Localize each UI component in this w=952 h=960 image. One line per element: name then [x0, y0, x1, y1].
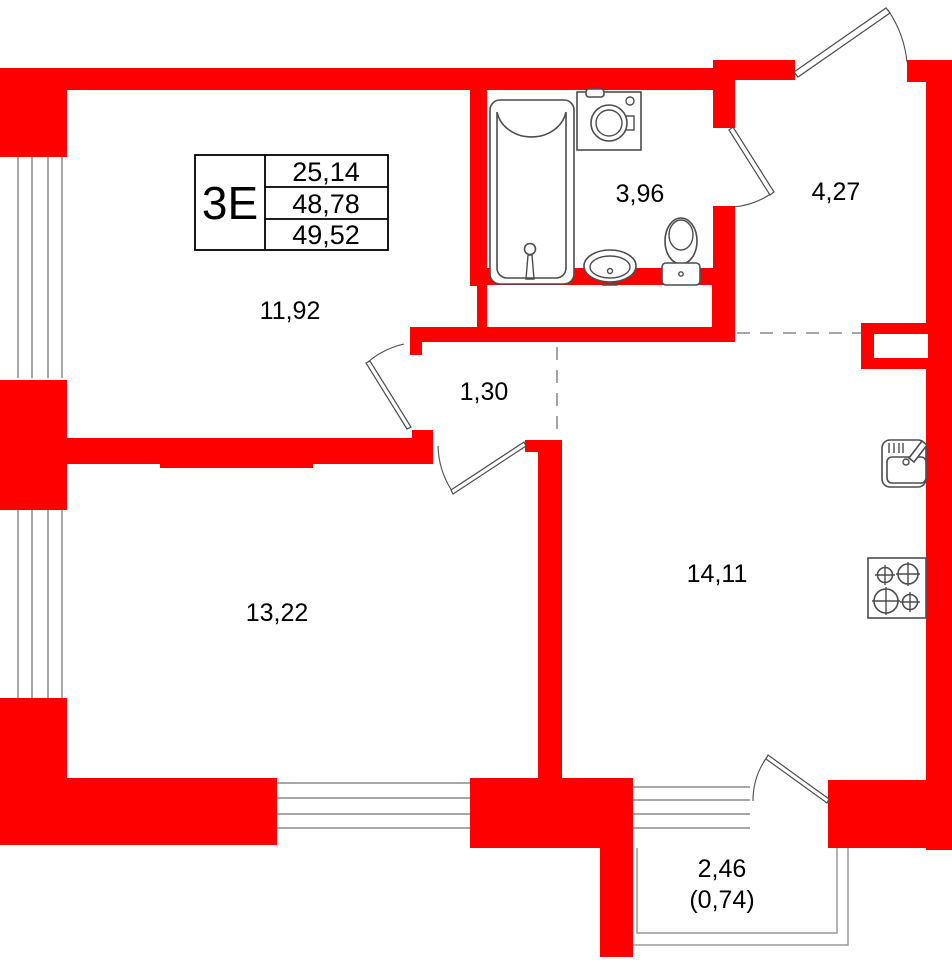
dashed-boundaries — [557, 333, 861, 433]
unit-area-value-2: 48,78 — [292, 189, 360, 219]
wall-bath-hall-divider-lower — [713, 206, 735, 342]
balcony-door-leaf — [766, 755, 829, 803]
wall-bathroom-left — [470, 86, 487, 286]
room-area-label-kitchen-living: 14,11 — [687, 560, 748, 588]
unit-area-value-1: 25,14 — [292, 157, 360, 187]
walls — [0, 60, 952, 957]
room-lower-door-leaf — [451, 442, 526, 494]
room-area-label-hallway: 4,27 — [812, 178, 861, 206]
room-upper-door-arc — [368, 344, 404, 362]
wall-room-divider-thick — [160, 438, 313, 468]
wall-bath-hall-divider-upper — [713, 60, 735, 128]
room-upper-door — [366, 344, 411, 429]
window-bottom — [277, 783, 470, 828]
wall-bottom-right — [828, 780, 952, 848]
balcony-door-arc — [753, 757, 767, 801]
room-lower-door-arc — [438, 446, 452, 491]
room-area-label-room-upper: 11,92 — [260, 297, 321, 325]
windows — [18, 157, 750, 828]
window-left-upper — [18, 157, 62, 378]
balcony-door — [753, 755, 829, 803]
entrance-door-leaf — [794, 8, 890, 77]
window-left-lower — [18, 510, 62, 698]
duct-right-wall-cutout — [874, 334, 928, 358]
wall-bottom-left — [0, 778, 277, 845]
window-balcony — [633, 787, 750, 828]
washing-machine-icon — [577, 89, 641, 150]
unit-type-label: 3Е — [202, 177, 258, 229]
room-area-label-balcony-secondary: (0,74) — [689, 886, 754, 914]
wall-left-pier-bottom — [0, 698, 67, 783]
wall-central — [538, 450, 562, 780]
wall-right — [926, 60, 952, 850]
bathroom-door-leaf — [729, 127, 774, 195]
room-area-label-balcony: 2,46 — [698, 855, 747, 883]
stove-icon — [868, 558, 926, 618]
unit-area-value-3: 49,52 — [292, 220, 360, 250]
floor-plan: 11,92 3,96 4,27 1,30 13,22 14,11 2,46 (0… — [0, 0, 952, 960]
toilet-icon — [662, 218, 700, 285]
room-area-label-bathroom: 3,96 — [616, 180, 665, 208]
wall-corridor-top-step — [410, 327, 422, 355]
unit-info-table: 3Е 25,14 48,78 49,52 — [195, 155, 388, 250]
bathroom-door — [729, 127, 774, 207]
room-area-label-room-lower: 13,22 — [246, 599, 309, 627]
entrance-door-arc — [888, 10, 907, 62]
room-area-label-corridor: 1,30 — [460, 378, 509, 406]
room-upper-door-leaf — [366, 361, 411, 429]
wall-top-left-pier — [0, 68, 67, 157]
bathroom-door-arc — [733, 193, 772, 207]
room-lower-door — [438, 442, 526, 494]
wall-left-pier-mid — [0, 380, 67, 510]
wall-corridor-top — [410, 327, 730, 342]
kitchen-sink-icon — [882, 440, 927, 487]
bathtub-icon — [490, 100, 574, 284]
wall-balcony-left — [600, 845, 633, 957]
wall-bottom-mid — [470, 778, 633, 848]
wall-door-post — [412, 430, 433, 442]
wall-top — [0, 68, 717, 90]
entrance-door — [794, 8, 907, 77]
duct-under-bathroom-cutout — [487, 285, 712, 327]
